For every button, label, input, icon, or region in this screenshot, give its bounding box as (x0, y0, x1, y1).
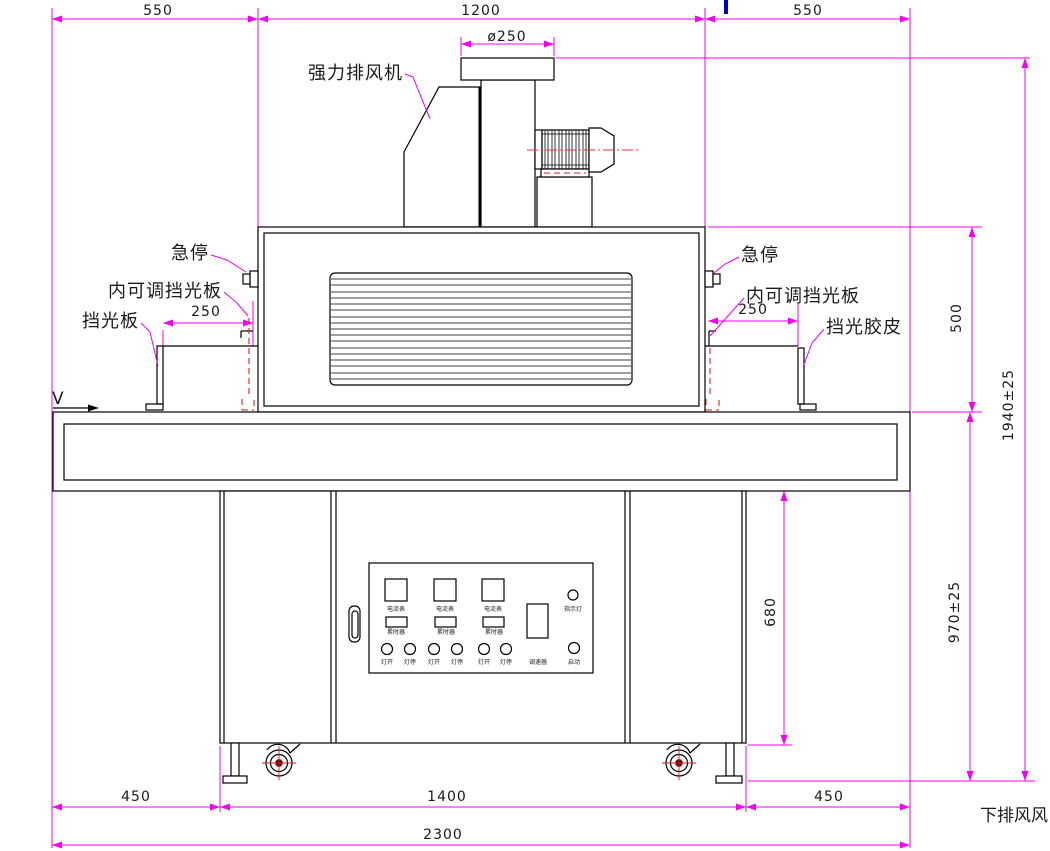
timer-3-label: 累时器 (485, 628, 503, 636)
dim-overall-height: 1940±25 (1001, 369, 1017, 441)
bottom-exhaust-note: 下排风风 (980, 806, 1048, 826)
blue-reference-mark (724, 0, 728, 14)
speed-controller-label: 调速器 (529, 658, 547, 666)
control-panel: 电流表 电流表 电流表 累时器 累时器 累时器 灯开 灯停 灯开 灯停 灯开 灯… (369, 563, 593, 673)
dim-chamber-height: 500 (949, 303, 965, 333)
caster-wheel-right (662, 744, 700, 780)
shield-plate-label: 挡光板 (82, 311, 139, 332)
dim-overall-width: 2300 (423, 827, 463, 843)
ammeter-3-label: 电流表 (484, 605, 502, 613)
dim-top-left: 550 (143, 3, 173, 19)
right-shield-shelf (705, 331, 816, 410)
inner-shield-left-label: 内可调挡光板 (108, 281, 222, 302)
motor-pedestal (537, 177, 592, 227)
dim-top-span: 1200 (461, 3, 501, 19)
leveling-foot-left (223, 743, 247, 783)
leveling-foot-right (716, 743, 742, 783)
caster-wheel-left (262, 744, 300, 780)
left-inner-shield-hidden (242, 318, 254, 410)
lamp-on-2-label: 灯开 (428, 658, 440, 666)
direction-arrow-icon (88, 405, 99, 412)
uv-chamber (243, 227, 720, 412)
ammeter-2-label: 电流表 (436, 605, 454, 613)
dim-left-offset: 250 (191, 304, 221, 320)
estop-right-label: 急停 (741, 245, 779, 266)
direction-label: V (52, 389, 64, 409)
lamp-off-1-label: 灯停 (404, 658, 416, 666)
estop-left-label: 急停 (171, 243, 209, 264)
estop-button-right[interactable] (705, 271, 720, 287)
dim-right-offset: 250 (738, 302, 768, 318)
uv-machine-drawing: V 电流表 电流表 电流表 累时器 (0, 0, 1050, 851)
start-label: 启动 (568, 658, 580, 666)
shield-rubber-label: 挡光胶皮 (826, 317, 902, 338)
fan-scroll-housing (404, 87, 481, 227)
fan-flange-cap (461, 58, 554, 80)
fan-motor (527, 128, 640, 227)
right-shield-rubber-plate (798, 348, 804, 404)
fan-duct (481, 80, 535, 227)
lamp-on-1-label: 灯开 (381, 658, 393, 666)
conveyor-table (53, 412, 910, 491)
lamp-off-2-label: 灯停 (451, 658, 463, 666)
dim-table-height: 970±25 (947, 581, 963, 643)
exhaust-fan-assembly (404, 58, 640, 227)
timer-1-label: 累时器 (387, 628, 405, 636)
lamp-off-3-label: 灯停 (500, 658, 512, 666)
dim-cabinet-height: 680 (763, 597, 779, 627)
dim-bottom-right: 450 (814, 789, 844, 805)
timer-2-label: 累时器 (437, 628, 455, 636)
dim-flange: ø250 (487, 29, 526, 45)
base-cabinet: 电流表 电流表 电流表 累时器 累时器 累时器 灯开 灯停 灯开 灯停 灯开 灯… (220, 491, 746, 743)
left-shield-plate (157, 346, 163, 404)
exhaust-fan-label: 强力排风机 (308, 63, 403, 84)
ammeter-1-label: 电流表 (387, 605, 405, 613)
estop-button-left[interactable] (243, 271, 258, 287)
dim-bottom-left: 450 (121, 789, 151, 805)
drawing-canvas: V 电流表 电流表 电流表 累时器 (0, 0, 1050, 851)
motor-body (542, 130, 589, 169)
lamp-on-3-label: 灯开 (478, 658, 490, 666)
chamber-outer (258, 227, 705, 412)
indicator-label: 指示灯 (564, 605, 582, 613)
right-inner-shield-hidden (706, 348, 719, 410)
belt-direction: V (52, 389, 99, 412)
dim-top-right: 550 (793, 3, 823, 19)
dim-bottom-span: 1400 (427, 789, 467, 805)
